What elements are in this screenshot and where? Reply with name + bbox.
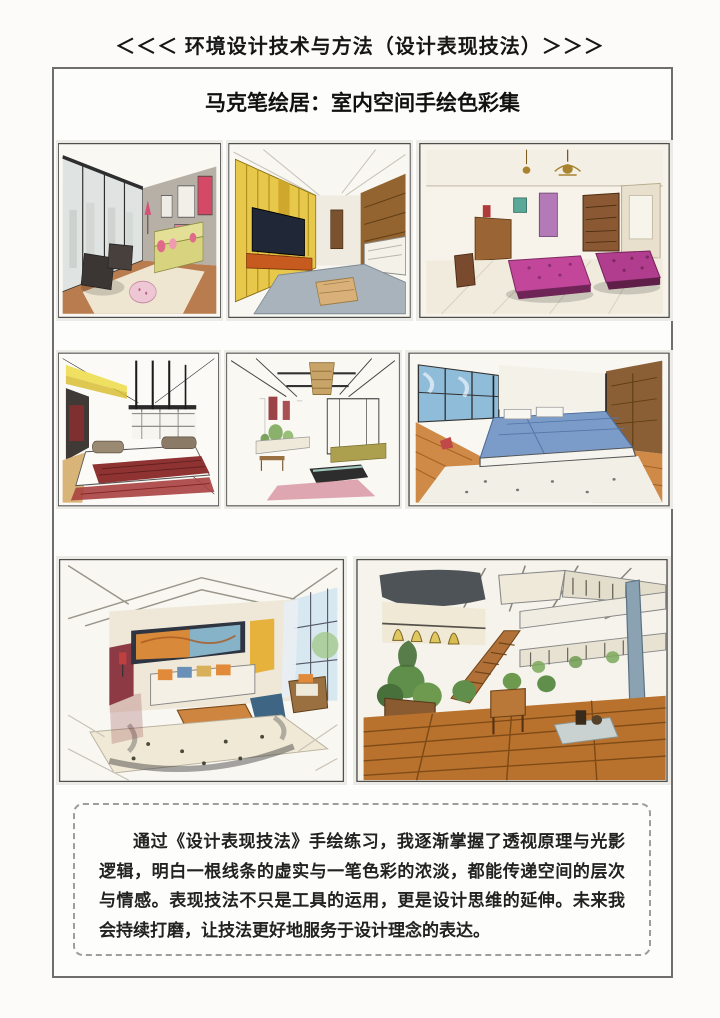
two-point-living-room-image (56, 556, 347, 785)
sketch-magenta-ottoman-lounge (416, 140, 673, 321)
loft-atrium-image (353, 556, 671, 785)
sketch-coffered-ceiling-lounge (224, 350, 402, 509)
sketch-tv-wall-living-room (226, 140, 413, 321)
platform-bed-room-image (56, 350, 221, 509)
coffered-ceiling-lounge-image (224, 350, 402, 509)
page-header-title: ＜＜＜ 环境设计技术与方法（设计表现技法）＞＞＞ (0, 30, 720, 59)
sketch-row-3 (56, 556, 671, 785)
living-room-city-window-image (56, 140, 223, 321)
sketch-row-2 (56, 350, 673, 509)
blue-bedding-bedroom-image (405, 350, 673, 509)
sketch-platform-bed-room (56, 350, 221, 509)
tv-wall-living-room-image (226, 140, 413, 321)
sketch-row-1 (56, 140, 673, 321)
reflection-note-box: 通过《设计表现技法》手绘练习，我逐渐掌握了透视原理与光影逻辑，明白一根线条的虚实… (73, 803, 651, 956)
sketch-living-room-city-window (56, 140, 223, 321)
magenta-ottoman-lounge-image (416, 140, 673, 321)
sketch-two-point-living-room (56, 556, 347, 785)
sketch-loft-atrium (353, 556, 671, 785)
content-frame: 马克笔绘居：室内空间手绘色彩集 (52, 67, 673, 978)
reflection-note-text: 通过《设计表现技法》手绘练习，我逐渐掌握了透视原理与光影逻辑，明白一根线条的虚实… (75, 805, 649, 945)
album-title: 马克笔绘居：室内空间手绘色彩集 (54, 87, 671, 117)
sketch-blue-bedding-bedroom (405, 350, 673, 509)
